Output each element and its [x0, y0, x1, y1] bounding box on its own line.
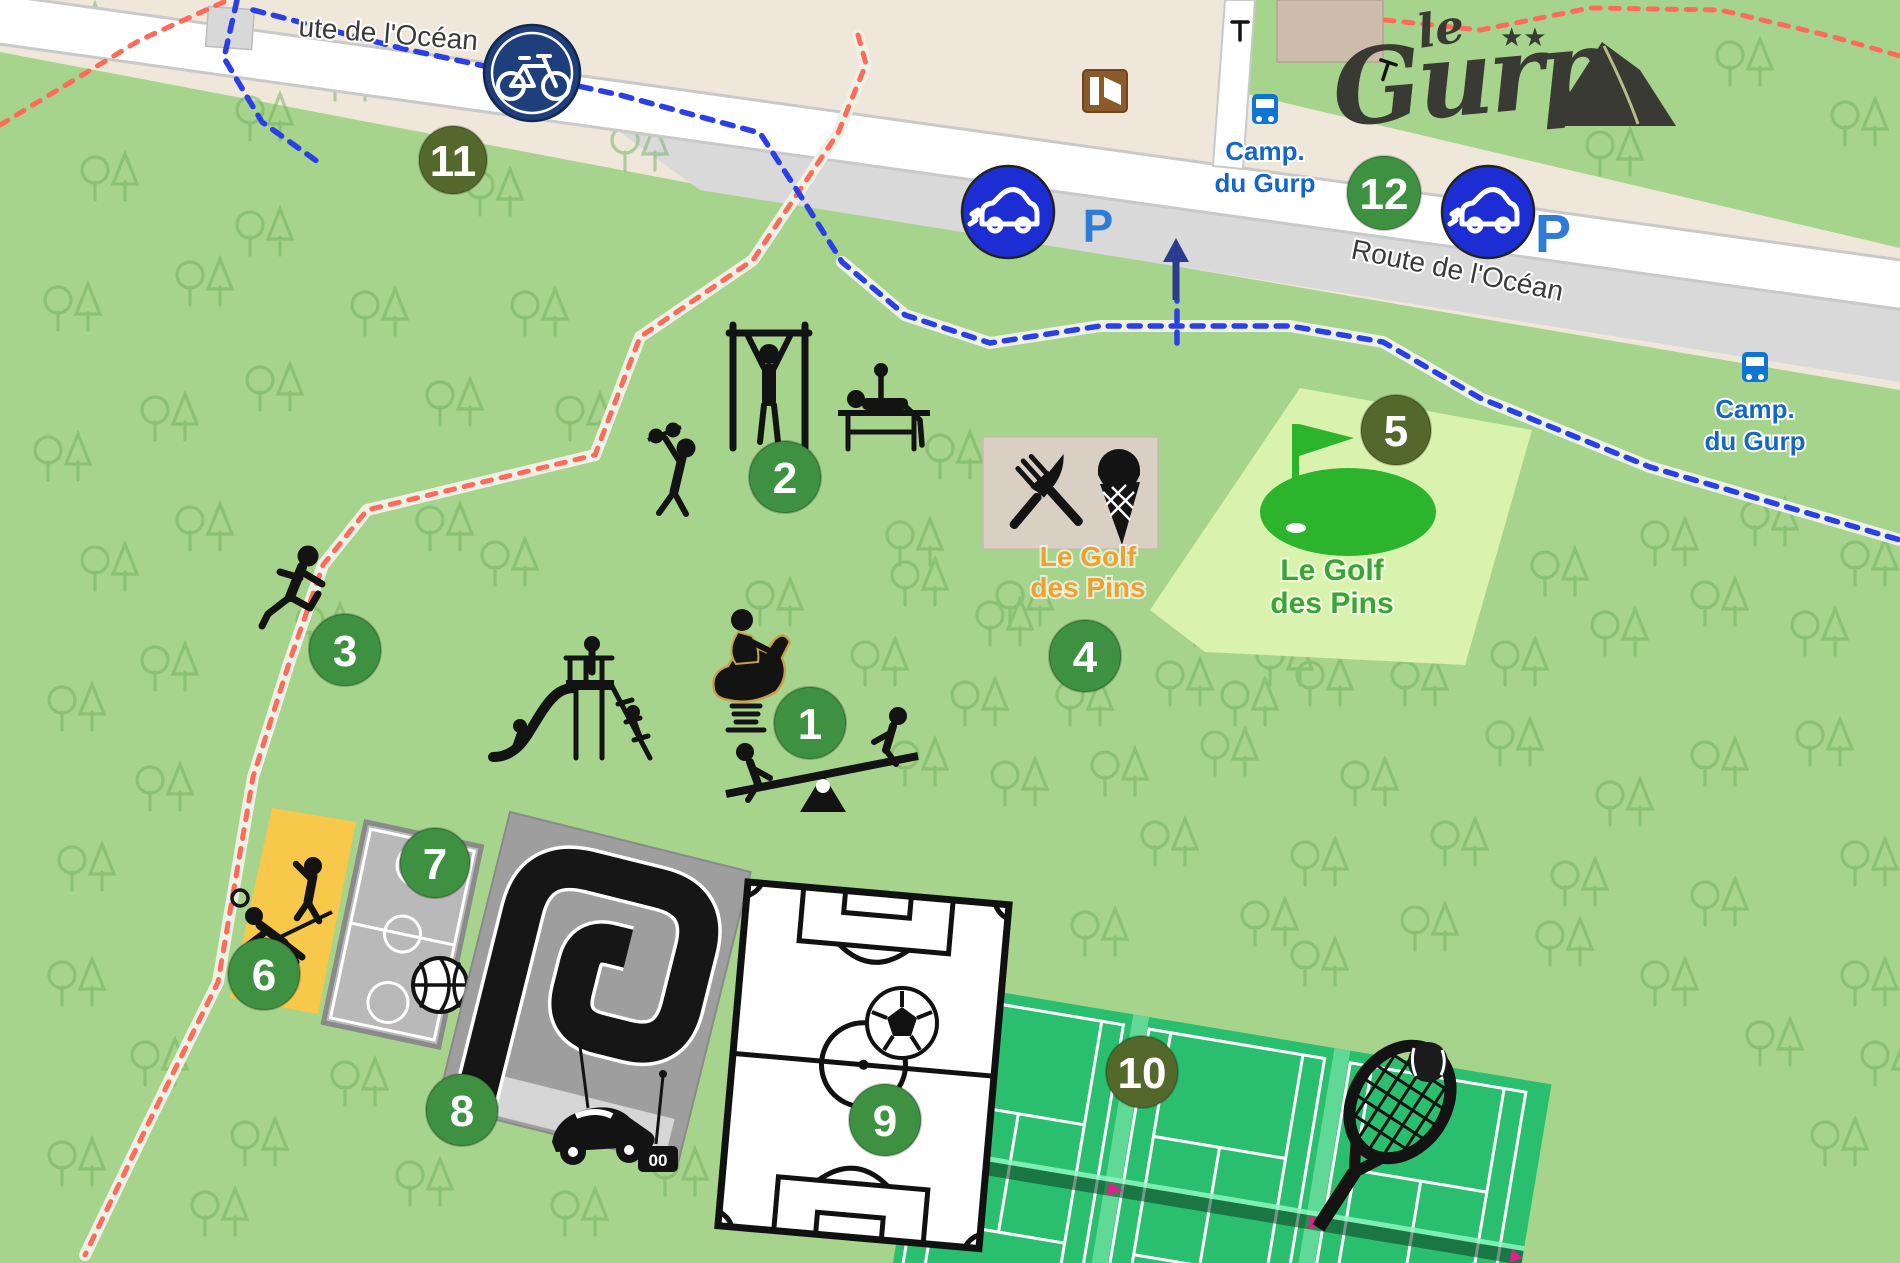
map-marker-9[interactable]: 9 [849, 1084, 921, 1156]
svg-text:4: 4 [1073, 633, 1098, 682]
toilets-icon[interactable] [1083, 70, 1127, 112]
bus-stop-icon[interactable] [1742, 352, 1768, 382]
map-marker-1[interactable]: 1 [774, 687, 846, 759]
logo-stars: ★★ [1500, 22, 1547, 52]
bus-stop-icon[interactable] [1252, 94, 1278, 124]
soccer-ball-icon [867, 988, 937, 1058]
map-marker-4[interactable]: 4 [1049, 620, 1121, 692]
bus-stop-label-line2: du Gurp [1704, 426, 1805, 456]
svg-text:1: 1 [798, 700, 822, 749]
golf-label-orange-line2: des Pins [1030, 572, 1145, 603]
svg-text:2: 2 [773, 454, 797, 503]
bus-stop-label-line1: Camp. [1225, 136, 1304, 166]
parking-p-left: P [1083, 200, 1114, 252]
bike-route-sign[interactable] [484, 25, 580, 121]
map-marker-10[interactable]: 10 [1106, 1036, 1178, 1108]
basketball-icon [413, 958, 467, 1012]
golf-label-green-line1: Le Golf [1280, 554, 1384, 587]
map-marker-3[interactable]: 3 [309, 614, 381, 686]
bus-stop-label-line2: du Gurp [1214, 168, 1315, 198]
logo-name: Gurp [1327, 4, 1616, 151]
map-marker-5[interactable]: 5 [1361, 395, 1431, 465]
map-marker-8[interactable]: 8 [426, 1074, 498, 1146]
svg-text:9: 9 [873, 1097, 897, 1146]
golf-label-orange-line1: Le Golf [1040, 541, 1137, 572]
soccer-field[interactable] [718, 882, 1009, 1249]
ev-charging-sign[interactable] [962, 166, 1054, 258]
ev-charging-sign[interactable] [1442, 166, 1534, 258]
svg-text:12: 12 [1360, 170, 1409, 219]
map-marker-2[interactable]: 2 [749, 441, 821, 513]
svg-text:7: 7 [423, 840, 447, 889]
map-marker-12[interactable]: 12 [1347, 156, 1421, 230]
bus-stop-label-line1: Camp. [1715, 394, 1794, 424]
campground-map: 00 [0, 0, 1900, 1263]
svg-text:8: 8 [450, 1087, 474, 1136]
map-marker-11[interactable]: 11 [419, 126, 487, 194]
parking-p-right: P [1535, 204, 1571, 264]
map-marker-6[interactable]: 6 [228, 938, 300, 1010]
golf-label-green-line2: des Pins [1270, 587, 1393, 620]
rc-remote-display: 00 [649, 1151, 668, 1170]
map-marker-7[interactable]: 7 [400, 828, 470, 898]
svg-text:10: 10 [1118, 1049, 1167, 1098]
svg-text:5: 5 [1384, 407, 1408, 456]
svg-text:11: 11 [430, 137, 477, 186]
svg-text:6: 6 [252, 951, 276, 1000]
svg-text:3: 3 [333, 627, 357, 676]
